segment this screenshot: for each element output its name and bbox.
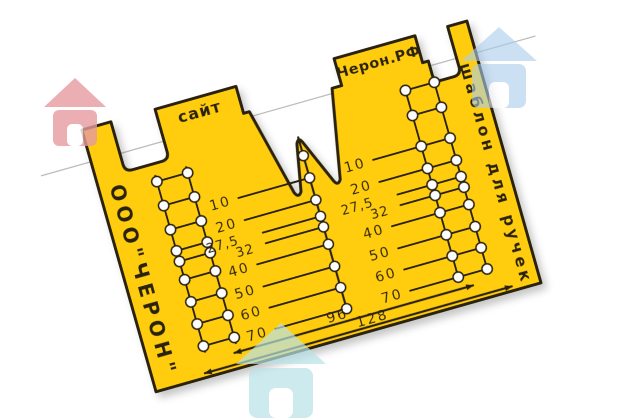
house-door bbox=[269, 388, 293, 418]
house-door bbox=[67, 124, 83, 146]
scene-svg: сайт Черон.РФ ООО"ЧЕРОН" шаблон для руче… bbox=[0, 0, 626, 420]
house-roof bbox=[44, 78, 106, 107]
product-photo: сайт Черон.РФ ООО"ЧЕРОН" шаблон для руче… bbox=[0, 0, 626, 420]
house-door bbox=[489, 82, 509, 108]
house-icon bbox=[44, 78, 106, 146]
